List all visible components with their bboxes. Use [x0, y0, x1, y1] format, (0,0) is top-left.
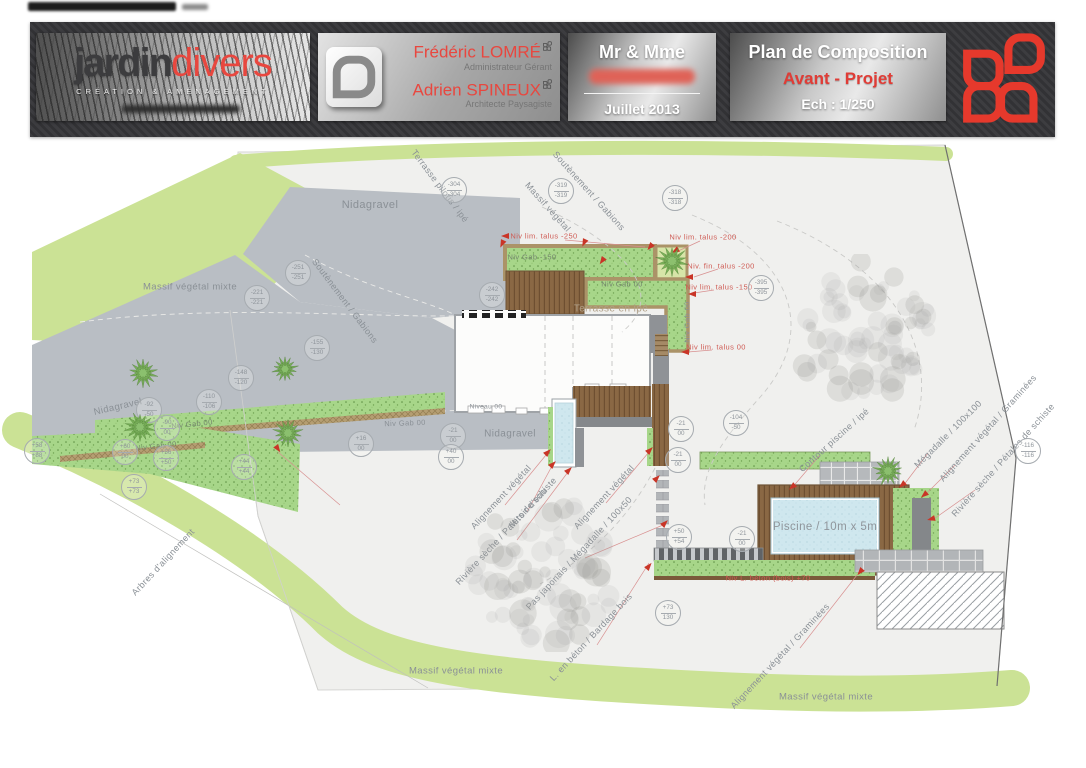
team-panel: Frédéric LOMRÉ Administrateur Gérant Adr… — [318, 33, 560, 121]
title-block: jardindivers CRÉATION & AMÉNAGEMENT Fréd… — [30, 22, 1055, 137]
divider — [584, 93, 700, 94]
drawing-scale: Ech : 1/250 — [730, 96, 946, 112]
wood-edge — [654, 576, 875, 580]
upper-deck-ipe — [506, 271, 584, 314]
client-name-redacted — [589, 69, 695, 84]
client-title: Mr & Mme — [568, 42, 716, 63]
person2-role: Architecte Paysagiste — [413, 100, 553, 109]
clover-icon — [543, 79, 552, 89]
project-date: Juillet 2013 — [568, 101, 716, 117]
logo-tagline: CRÉATION & AMÉNAGEMENT — [36, 87, 310, 96]
green-edge — [548, 407, 553, 466]
bottom-green-strip — [654, 560, 875, 577]
drawing-title-panel: Plan de Composition Avant - Projet Ech :… — [730, 33, 946, 121]
person1-name: Frédéric LOMRÉ — [413, 41, 553, 61]
schist-band — [912, 498, 931, 552]
pool-water — [772, 499, 878, 553]
logo-word-1: jardin — [74, 41, 171, 85]
planted-square — [656, 246, 687, 279]
clover-icon — [543, 41, 552, 51]
website-redacted — [122, 105, 240, 113]
garage-door-dashes — [462, 310, 526, 318]
steps-grid — [855, 550, 983, 572]
company-logo-panel: jardindivers CRÉATION & AMÉNAGEMENT — [36, 33, 310, 121]
client-panel: Mr & Mme Juillet 2013 — [568, 33, 716, 121]
mirror-water — [555, 403, 573, 463]
logo-petal-icon — [326, 47, 382, 107]
person1-role: Administrateur Gérant — [413, 63, 553, 72]
company-logo: jardindivers — [36, 43, 310, 83]
drawing-sheet: NidagravelTerrasse pilotis / ipéSoutènem… — [0, 0, 1086, 768]
drawing-title: Plan de Composition — [730, 42, 946, 63]
terrace-edge-bar — [570, 417, 654, 427]
future-extension-hatch — [877, 572, 1004, 629]
l-wall-concrete — [654, 548, 763, 561]
terrace-ipe — [573, 386, 651, 419]
person2-name: Adrien SPINEUX — [413, 79, 553, 99]
wood-column — [652, 384, 669, 466]
green-edge — [647, 428, 653, 466]
stepping-stones — [656, 470, 669, 552]
clover-logo-icon — [962, 32, 1046, 124]
steps — [655, 334, 668, 356]
drawing-phase: Avant - Projet — [730, 69, 946, 89]
wall-dark — [575, 428, 584, 467]
logo-word-2: divers — [171, 41, 272, 85]
brand-mark-panel — [958, 26, 1050, 130]
